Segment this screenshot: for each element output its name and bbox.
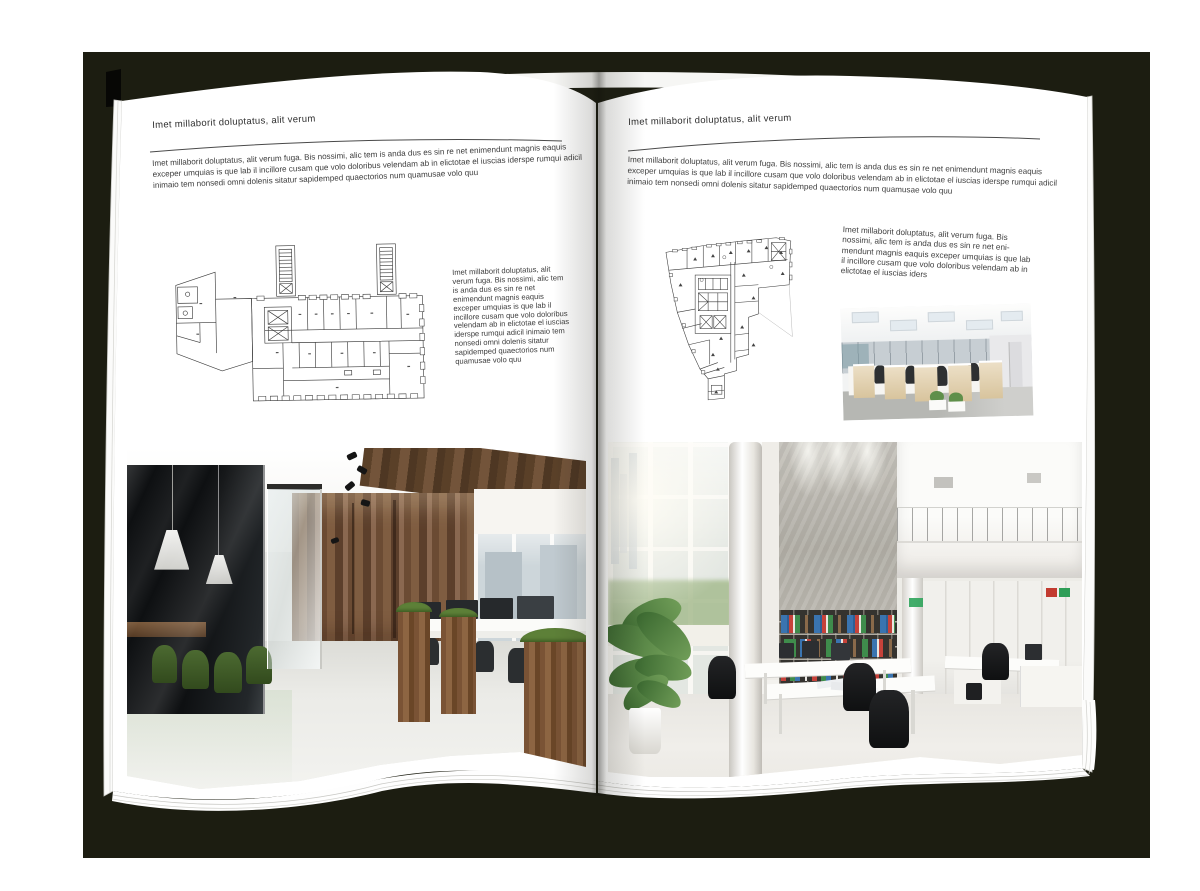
potted-plant <box>608 598 703 775</box>
monitor <box>779 643 794 659</box>
binder-row <box>781 615 895 633</box>
safety-sign <box>1046 588 1056 597</box>
monitor <box>802 641 819 658</box>
wood-planter <box>398 608 430 722</box>
office-photo-right <box>608 442 1082 782</box>
monitor <box>1025 644 1042 659</box>
page-left-side-text: Imet millaborit doluptatus, alit verum f… <box>452 265 573 367</box>
glass-railing <box>897 507 1082 542</box>
ceiling-light <box>852 312 879 323</box>
cabinet <box>884 365 906 399</box>
green-chair <box>182 650 209 690</box>
office-chair <box>708 656 736 699</box>
mezzanine <box>897 442 1082 578</box>
cabinet <box>853 364 875 398</box>
plant-pot <box>629 708 661 754</box>
safety-sign <box>1059 588 1069 597</box>
page-right-side-text: Imet millaborit doluptatus, alit verum f… <box>840 225 1035 286</box>
ceiling-light <box>1000 310 1023 321</box>
cabinet <box>979 360 1003 399</box>
waste-bin <box>966 683 983 700</box>
wood-planter <box>441 614 475 714</box>
ceiling-light <box>966 319 993 330</box>
monitor <box>517 596 554 618</box>
office-chair <box>982 643 1008 680</box>
office-photo-left <box>127 448 586 793</box>
green-chair <box>152 645 177 683</box>
office-chair <box>869 690 909 748</box>
exit-sign <box>909 598 923 607</box>
floor-plan-right <box>653 224 807 412</box>
office-photo-small <box>841 304 1034 421</box>
ceiling-light <box>928 311 955 322</box>
concrete-wall <box>779 442 898 636</box>
glass-panel <box>267 489 322 668</box>
column <box>729 442 762 782</box>
office-chair <box>474 641 495 672</box>
brochure-mockup: Imet millaborit doluptatus, alit verum I… <box>0 0 1200 891</box>
green-chair <box>214 652 242 693</box>
ceiling-light <box>890 320 917 331</box>
monitor <box>831 643 850 661</box>
floor-plan-left <box>148 230 443 413</box>
monitor <box>480 598 512 619</box>
